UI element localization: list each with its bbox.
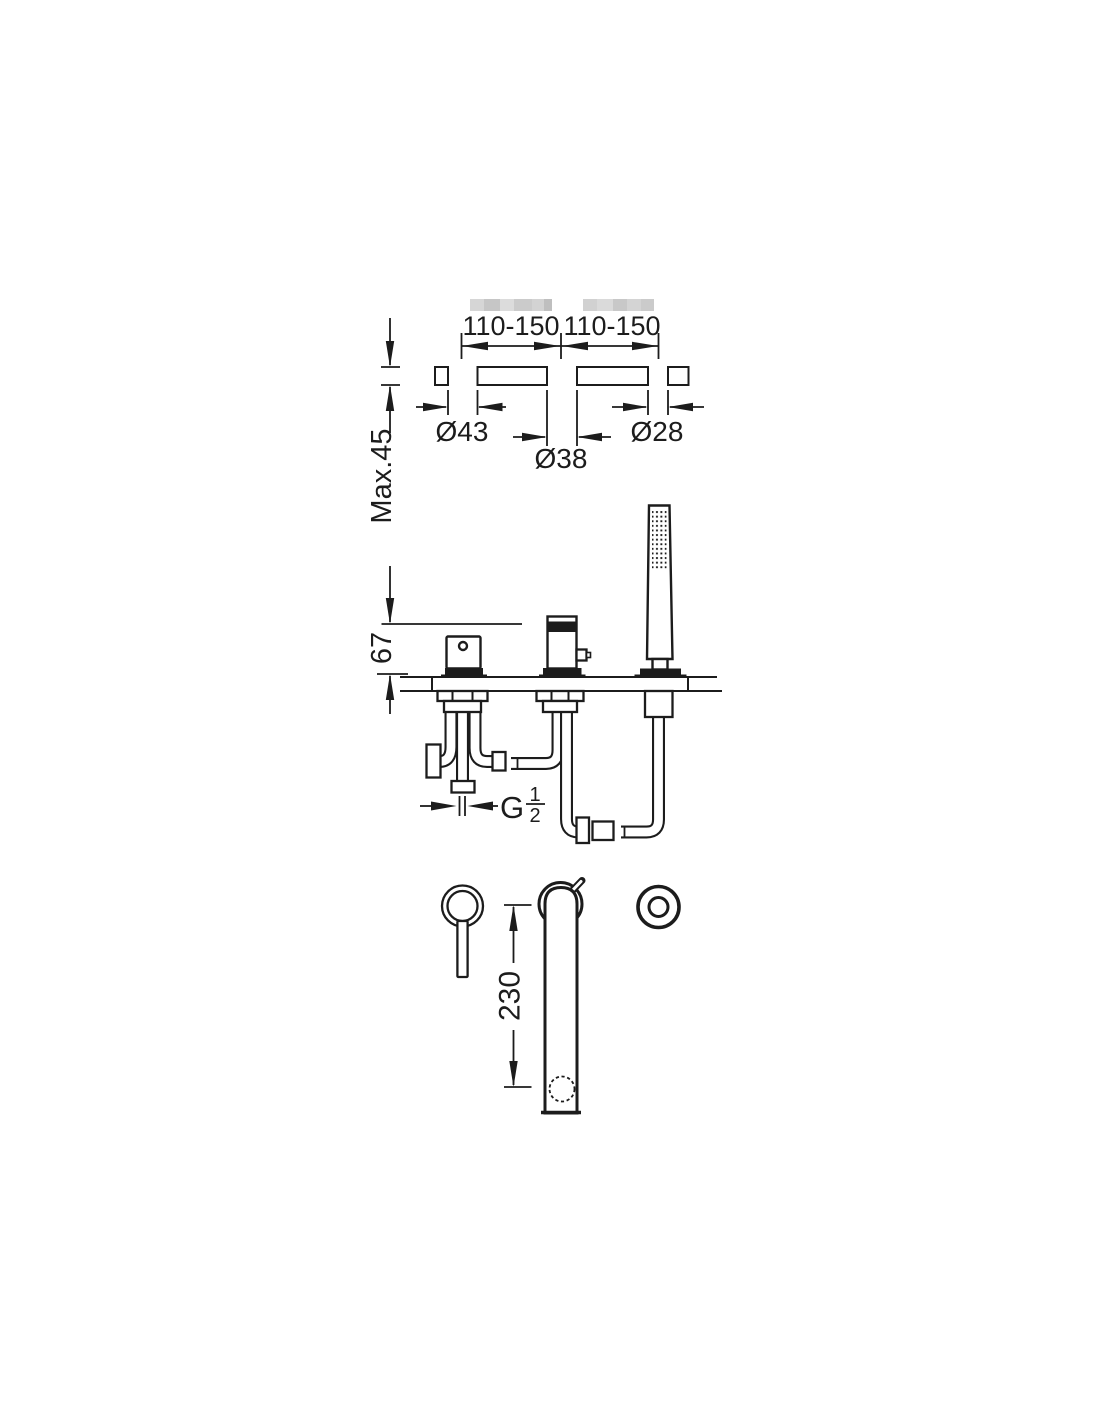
spray-face-dots [652, 511, 667, 569]
handshower-elbow-block [645, 691, 673, 717]
left-inlet-fitting [427, 745, 441, 778]
right-outlet-fitting [493, 752, 506, 771]
spout-side-view [539, 617, 591, 678]
hole-diameter-38-label: Ø38 [535, 443, 588, 474]
hose-coupling-small [577, 818, 590, 844]
diverter-knob [577, 650, 587, 661]
spout-length-dimension: 230 [494, 905, 532, 1087]
hose-coupling-large [593, 822, 614, 841]
g-half-inlet-cap [452, 781, 475, 793]
handle-front-view [442, 886, 483, 978]
thread-size-dimension: G 1 2 [420, 784, 545, 827]
spout-mounting-nut [537, 691, 584, 712]
deck-slab-hatched [435, 367, 689, 385]
deck-thickness-dimension: Max.45 [366, 318, 400, 524]
hole-diameter-43-dimension: Ø43 [416, 403, 506, 447]
spacing-left-label: 110-150 [462, 311, 559, 341]
handle-screw-icon [459, 642, 467, 650]
spout-supply-pipe [511, 713, 558, 764]
deck-cross-section: 110-150 110-150 Ø43 [366, 311, 704, 524]
thread-denominator-label: 2 [529, 805, 540, 827]
drawing-svg: 110-150 110-150 Ø43 [0, 0, 1100, 1422]
handshower-hose-pipe [621, 717, 659, 832]
spout-body [545, 888, 577, 1114]
spacing-right-label: 110-150 [563, 311, 660, 341]
handle-lever [457, 921, 467, 977]
holder-front-view [638, 887, 679, 928]
side-elevation: 67 [366, 506, 722, 844]
watermark-blur [470, 299, 654, 311]
thread-numerator-label: 1 [529, 784, 540, 806]
spout-height-label: 67 [366, 632, 398, 664]
deck-thickness-label: Max.45 [366, 428, 398, 523]
hole-diameter-38-dimension: Ø38 [513, 433, 611, 474]
spout-front-view [539, 881, 582, 1114]
mixer-mounting-nut [438, 691, 488, 712]
hole-diameter-28-label: Ø28 [631, 416, 684, 447]
deck-band [400, 677, 722, 691]
handle-side-view [441, 637, 487, 678]
hole-diameter-43-label: Ø43 [436, 416, 489, 447]
technical-drawing-canvas: 110-150 110-150 Ø43 [0, 0, 1100, 1422]
below-deck-plumbing: G 1 2 [420, 691, 673, 843]
hole-diameter-28-dimension: Ø28 [612, 403, 704, 447]
front-elevation: 230 [442, 881, 679, 1114]
spout-length-label: 230 [494, 971, 527, 1021]
handshower-side-view [635, 506, 687, 678]
thread-letter-label: G [500, 790, 524, 825]
hole-spacing-dimension: 110-150 110-150 [462, 311, 661, 359]
